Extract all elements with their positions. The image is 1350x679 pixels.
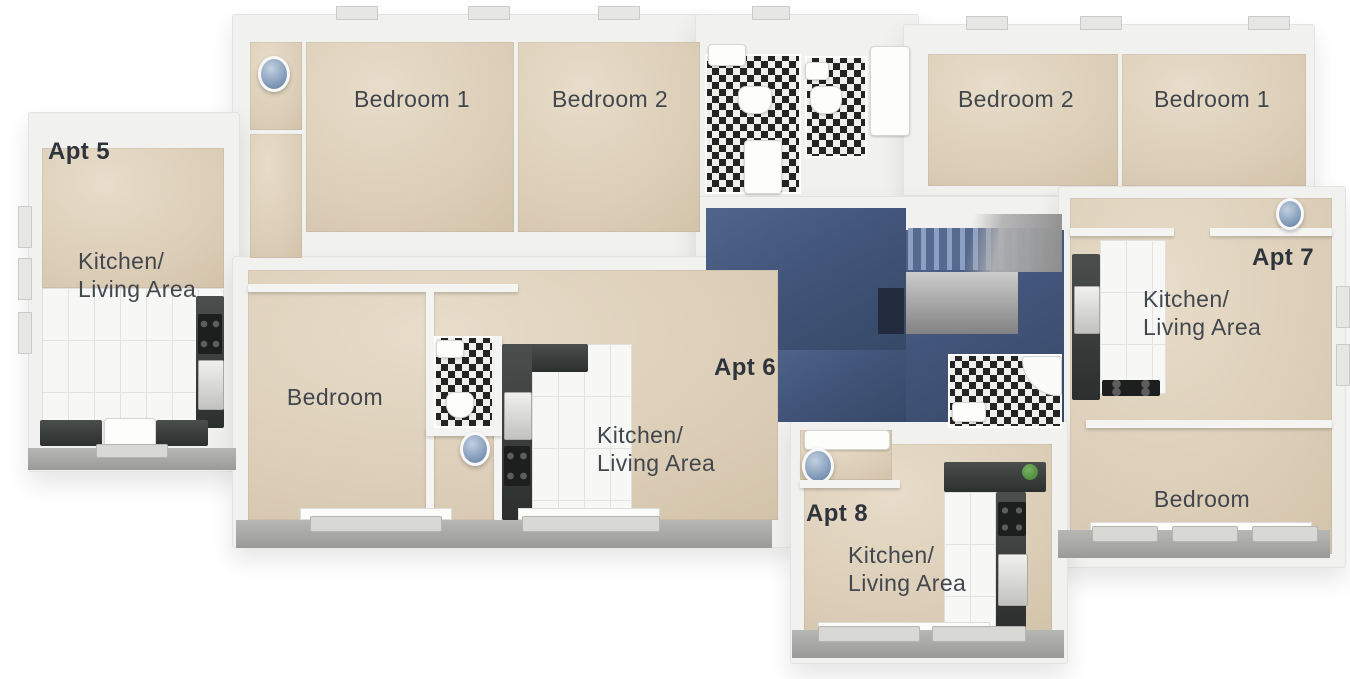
interior-wall — [248, 284, 518, 292]
fridge-icon — [198, 360, 224, 410]
sink-icon — [436, 340, 464, 358]
stove-icon — [198, 314, 222, 354]
fridge-icon — [504, 392, 532, 440]
bathtub-icon — [870, 46, 910, 136]
sink-icon — [952, 402, 986, 422]
kitchen-living-apt6-label-line1: Kitchen/ — [597, 422, 683, 449]
kitchen-counter — [156, 420, 208, 446]
window-sill — [1252, 526, 1318, 542]
window-sill — [818, 626, 920, 642]
kitchen-living-apt8-label-line2: Living Area — [848, 570, 966, 597]
window-icon — [966, 16, 1008, 30]
plant-icon — [1022, 464, 1038, 480]
kitchen-counter — [40, 420, 102, 446]
bedroom2-apt5-label: Bedroom 2 — [552, 86, 668, 113]
bedroom1-apt5-label: Bedroom 1 — [354, 86, 470, 113]
window-sill — [96, 444, 168, 458]
stove-icon — [504, 446, 530, 486]
bedroom2-apt7-label: Bedroom 2 — [958, 86, 1074, 113]
room-bedroom1-apt5 — [306, 42, 514, 232]
hallway-carpet — [760, 350, 906, 422]
toilet-icon — [446, 392, 474, 418]
apt5-label: Apt 5 — [48, 138, 110, 166]
window-sill — [1092, 526, 1158, 542]
window-icon — [598, 6, 640, 20]
window-sill — [932, 626, 1026, 642]
interior-wall — [1086, 420, 1332, 428]
interior-wall — [426, 428, 502, 436]
apt7-label: Apt 7 — [1252, 244, 1314, 272]
window-icon — [18, 312, 32, 354]
cabinet-icon — [804, 430, 890, 450]
room-bedroom1-apt7 — [1122, 54, 1306, 186]
kitchen-floor-apt8 — [944, 492, 996, 632]
window-icon — [752, 6, 790, 20]
fridge-icon — [1074, 286, 1100, 334]
stairwell-void — [878, 288, 904, 334]
window-icon — [1248, 16, 1290, 30]
sink-icon — [805, 62, 829, 80]
kitchen-living-apt7-label-line2: Living Area — [1143, 314, 1261, 341]
toilet-icon — [810, 86, 842, 114]
bin-icon — [258, 56, 290, 92]
bin-icon — [460, 432, 490, 466]
kitchen-living-apt5-label-line2: Living Area — [78, 276, 196, 303]
stove-icon — [1102, 380, 1160, 396]
bedroom-apt6-label: Bedroom — [287, 384, 383, 411]
interior-wall — [426, 292, 434, 520]
window-icon — [468, 6, 510, 20]
kitchen-living-apt6-label-line2: Living Area — [597, 450, 715, 477]
apt8-label: Apt 8 — [806, 500, 868, 528]
stair-ceiling-slab — [906, 272, 1018, 334]
kitchen-living-apt7-label-line1: Kitchen/ — [1143, 286, 1229, 313]
bedroom1-apt7-label: Bedroom 1 — [1154, 86, 1270, 113]
room-bedroom2-apt5 — [518, 42, 700, 232]
floor-plan: Bedroom 1 Bedroom 2 Bedroom 2 Bedroom 1 … — [0, 0, 1350, 679]
sink-icon — [708, 44, 746, 66]
fridge-icon — [998, 554, 1028, 606]
window-icon — [336, 6, 378, 20]
window-sill — [310, 516, 442, 532]
kitchen-living-apt8-label-line1: Kitchen/ — [848, 542, 934, 569]
interior-wall — [1210, 228, 1332, 236]
bedroom-apt7-label: Bedroom — [1154, 486, 1250, 513]
bin-icon — [1276, 198, 1304, 230]
corridor-floor-apt5 — [250, 134, 302, 258]
interior-wall — [1070, 228, 1174, 236]
window-icon — [1336, 344, 1350, 386]
bin-icon — [802, 448, 834, 484]
stair-ceiling-slab — [908, 214, 1062, 272]
window-sill — [1172, 526, 1238, 542]
apt6-label: Apt 6 — [714, 354, 776, 382]
toilet-icon — [738, 86, 772, 114]
window-sill — [522, 516, 660, 532]
window-icon — [18, 206, 32, 248]
window-icon — [18, 258, 32, 300]
room-bedroom2-apt7 — [928, 54, 1118, 186]
interior-wall — [800, 480, 900, 488]
window-icon — [1336, 286, 1350, 328]
bathtub-icon — [744, 140, 782, 194]
kitchen-living-apt5-label-line1: Kitchen/ — [78, 248, 164, 275]
window-icon — [1080, 16, 1122, 30]
stove-icon — [998, 502, 1026, 536]
